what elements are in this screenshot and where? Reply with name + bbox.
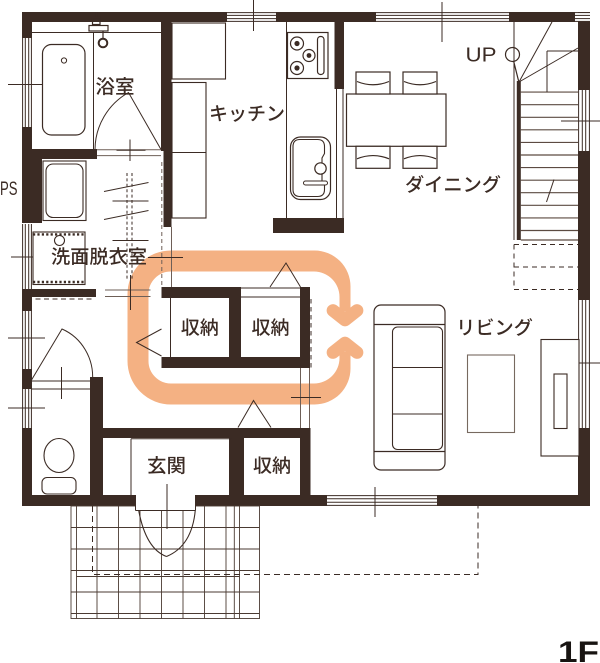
svg-text:PS: PS (0, 178, 18, 200)
svg-text:UP: UP (466, 45, 497, 67)
svg-text:1F: 1F (558, 636, 599, 663)
